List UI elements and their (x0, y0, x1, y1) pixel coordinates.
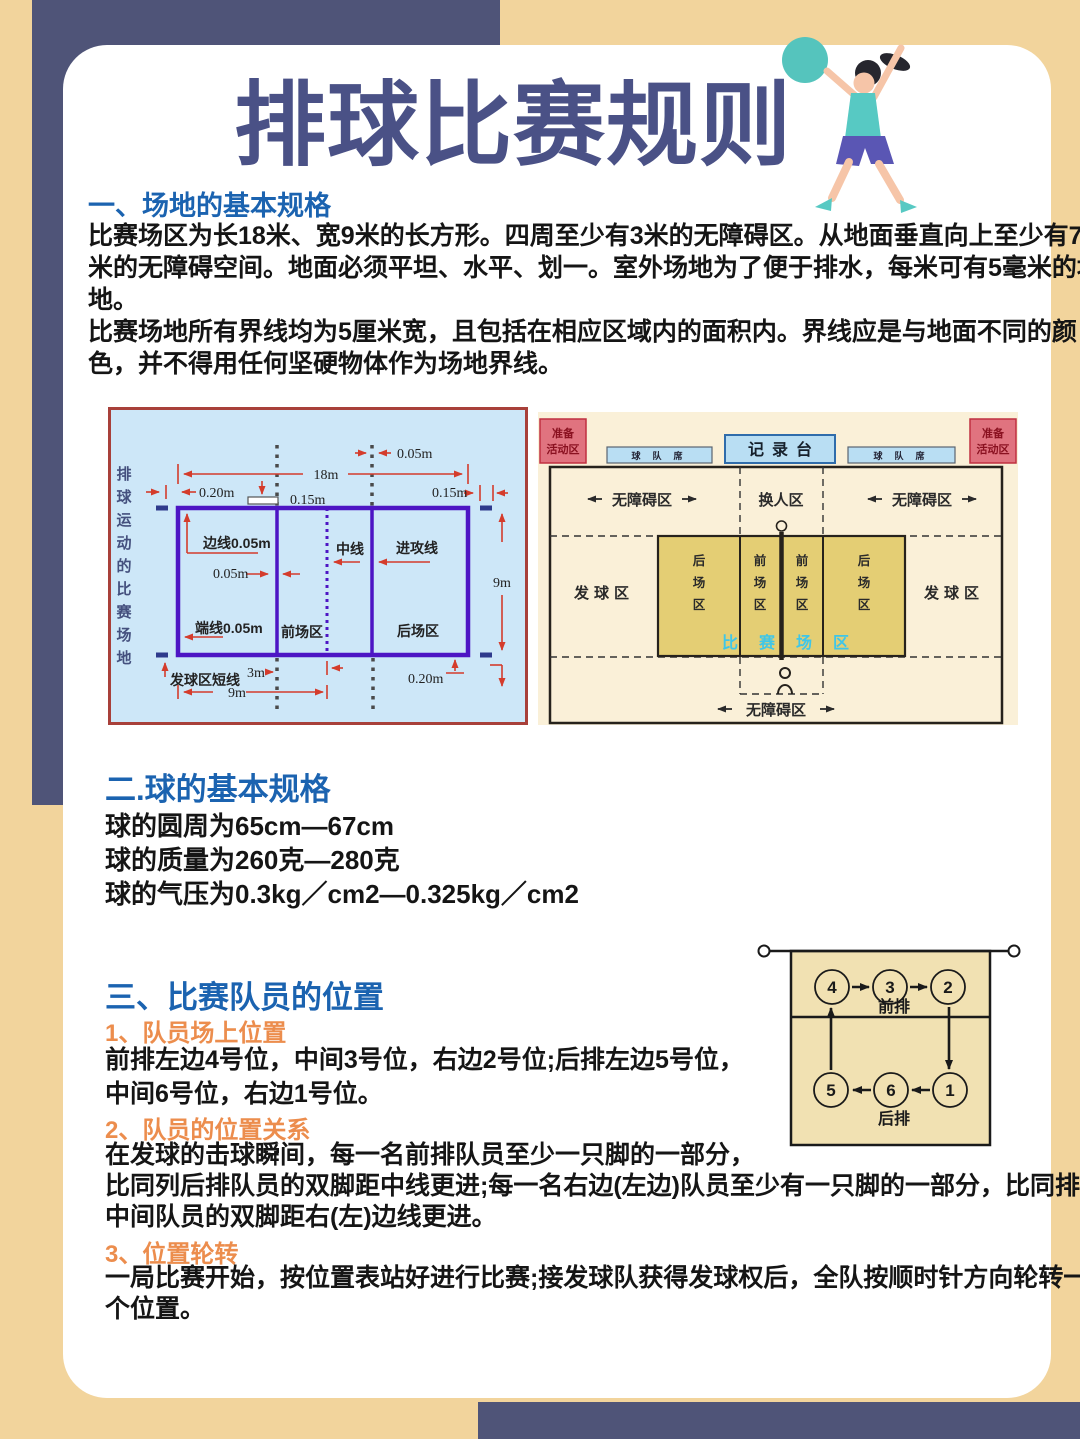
free-zone-label-top-left: 无障碍区 (611, 491, 672, 509)
svg-text:前: 前 (754, 553, 767, 568)
free-zone-label-bottom: 无障碍区 (745, 701, 806, 719)
svg-text:地: 地 (116, 649, 131, 667)
svg-text:准备: 准备 (552, 426, 575, 440)
net-bracket (248, 497, 278, 504)
back-row-label: 后排 (878, 1109, 910, 1128)
warmup-area-box-left: 准备 活动区 (540, 419, 586, 463)
section1-heading: 一、场地的基本规格 (88, 184, 331, 223)
dim-9m-bottom: 9m (228, 686, 246, 701)
svg-text:运: 运 (116, 512, 131, 529)
svg-text:1: 1 (945, 1081, 954, 1100)
dim-18m: 18m (314, 468, 339, 483)
court-dimensions-diagram: 排 球 运 动 的 比 赛 场 地 (108, 407, 528, 725)
text-line: 比赛场地所有界线均为5厘米宽，且包括在相应区域内的面积内。界线应是与地面不同的颜 (88, 316, 1080, 348)
svg-text:赛: 赛 (758, 633, 776, 652)
svg-text:赛: 赛 (115, 603, 132, 621)
svg-text:准备: 准备 (982, 426, 1005, 440)
section2-lines: 球的圆周为65cm—67cm 球的质量为260克—280克 球的气压为0.3kg… (105, 809, 579, 911)
svg-text:排: 排 (116, 465, 131, 483)
svg-text:记录台: 记录台 (748, 440, 820, 459)
substitution-zone-label: 换人区 (758, 491, 803, 509)
text-line: 球的气压为0.3kg／cm2—0.325kg／cm2 (105, 877, 579, 911)
svg-text:4: 4 (827, 978, 837, 997)
back-zone-label: 后场区 (397, 623, 439, 639)
text-line: 球的质量为260克—280克 (105, 843, 579, 877)
text-line: 一局比赛开始，按位置表站好进行比赛;接发球队获得发球权后，全队按顺时针方向轮转一 (105, 1263, 1080, 1294)
section2-heading: 二.球的基本规格 (105, 764, 331, 809)
court-zones-diagram: 准备 活动区 准备 活动区 记录台 球队席 球队席 (538, 407, 1018, 725)
svg-text:比: 比 (722, 634, 738, 652)
svg-text:场: 场 (796, 576, 809, 590)
side-line-label: 边线0.05m (202, 535, 271, 551)
text-line: 前排左边4号位，中间3号位，右边2号位;后排左边5号位， (105, 1043, 744, 1077)
front-zone-label: 前场区 (281, 624, 323, 640)
text-line: 中间队员的双脚距右(左)边线更进。 (105, 1202, 1080, 1233)
svg-text:6: 6 (886, 1081, 895, 1100)
team-bench-box-left: 球队席 (607, 447, 712, 463)
dim-3m: 3m (247, 666, 265, 681)
text-line: 比同列后排队员的双脚距中线更进;每一名右边(左边)队员至少有一只脚的一部分，比同… (105, 1171, 1080, 1202)
svg-text:3: 3 (885, 978, 894, 997)
svg-text:区: 区 (833, 634, 849, 652)
team-bench-box-right: 球队席 (848, 447, 955, 463)
dim-020m-top: 0.20m (199, 486, 235, 501)
svg-text:区: 区 (754, 598, 767, 612)
svg-text:场: 场 (796, 634, 812, 652)
svg-text:球: 球 (116, 488, 132, 506)
svg-text:区: 区 (693, 598, 706, 612)
text-line: 地。 (88, 284, 1080, 316)
svg-text:后: 后 (693, 553, 706, 568)
section3-heading: 三、比赛队员的位置 (105, 972, 384, 1017)
dim-015m-right: 0.15m (432, 486, 468, 501)
attack-line-label: 进攻线 (396, 540, 438, 556)
svg-text:区: 区 (858, 598, 871, 612)
rotation-diagram: 4 3 2 5 6 1 前排 后排 (756, 933, 1022, 1159)
poster-canvas: 排球比赛规则 一、场地的基本规格 比赛场区为长18米、宽9米的长方形。四周至少有… (0, 0, 1080, 1439)
serve-zone-label-left: 发球区 (573, 584, 634, 602)
svg-text:场: 场 (754, 576, 767, 590)
front-row-label: 前排 (878, 997, 910, 1016)
svg-text:场: 场 (116, 627, 131, 644)
volleyball-player-illustration (775, 35, 1025, 245)
end-line-label: 端线0.05m (195, 620, 263, 636)
svg-text:场: 场 (693, 576, 706, 590)
text-line: 球的圆周为65cm—67cm (105, 809, 579, 843)
svg-text:的: 的 (116, 557, 131, 575)
svg-text:球队席: 球队席 (631, 450, 694, 461)
svg-text:区: 区 (796, 598, 809, 612)
text-line: 中间6号位，右边1号位。 (105, 1077, 744, 1111)
text-line: 个位置。 (105, 1294, 1080, 1325)
svg-text:前: 前 (796, 553, 809, 568)
recorder-table-box: 记录台 (725, 435, 835, 463)
background-navy-bottom-right (478, 1402, 1080, 1439)
section1-paragraphs: 比赛场区为长18米、宽9米的长方形。四周至少有3米的无障碍区。从地面垂直向上至少… (88, 220, 1080, 380)
svg-text:后: 后 (858, 553, 871, 568)
playing-court (658, 532, 905, 660)
section3-sub1-lines: 前排左边4号位，中间3号位，右边2号位;后排左边5号位， 中间6号位，右边1号位… (105, 1043, 744, 1111)
svg-text:5: 5 (826, 1081, 835, 1100)
free-zone-label-top-right: 无障碍区 (891, 491, 952, 509)
serve-zone-label-right: 发球区 (923, 584, 984, 602)
svg-text:动: 动 (116, 534, 131, 552)
section3-sub3-lines: 一局比赛开始，按位置表站好进行比赛;接发球队获得发球权后，全队按顺时针方向轮转一… (105, 1263, 1080, 1325)
text-line: 色，并不得用任何坚硬物体作为场地界线。 (88, 348, 1080, 380)
svg-text:活动区: 活动区 (977, 442, 1010, 456)
svg-text:球队席: 球队席 (873, 450, 936, 461)
svg-text:比: 比 (116, 580, 131, 598)
warmup-area-box-right: 准备 活动区 (970, 419, 1016, 463)
volleyball-icon (782, 37, 828, 83)
player-figure-icon (815, 48, 917, 213)
center-line-label: 中线 (336, 541, 364, 557)
text-line: 比赛场区为长18米、宽9米的长方形。四周至少有3米的无障碍区。从地面垂直向上至少… (88, 220, 1080, 252)
svg-text:活动区: 活动区 (547, 442, 580, 456)
dim-9m-right: 9m (493, 576, 511, 591)
svg-text:2: 2 (943, 978, 952, 997)
dim-015m-mid: 0.15m (290, 493, 326, 508)
court-side-vertical-text: 排 球 运 动 的 比 赛 场 地 (115, 465, 132, 667)
text-line: 米的无障碍空间。地面必须平坦、水平、划一。室外场地为了便于排水，每米可有5毫米的… (88, 252, 1080, 284)
svg-text:场: 场 (858, 576, 871, 590)
dim-020m-bottom: 0.20m (408, 672, 444, 687)
dim-005m-top: 0.05m (397, 447, 433, 462)
dim-005m-mid: 0.05m (213, 567, 249, 582)
